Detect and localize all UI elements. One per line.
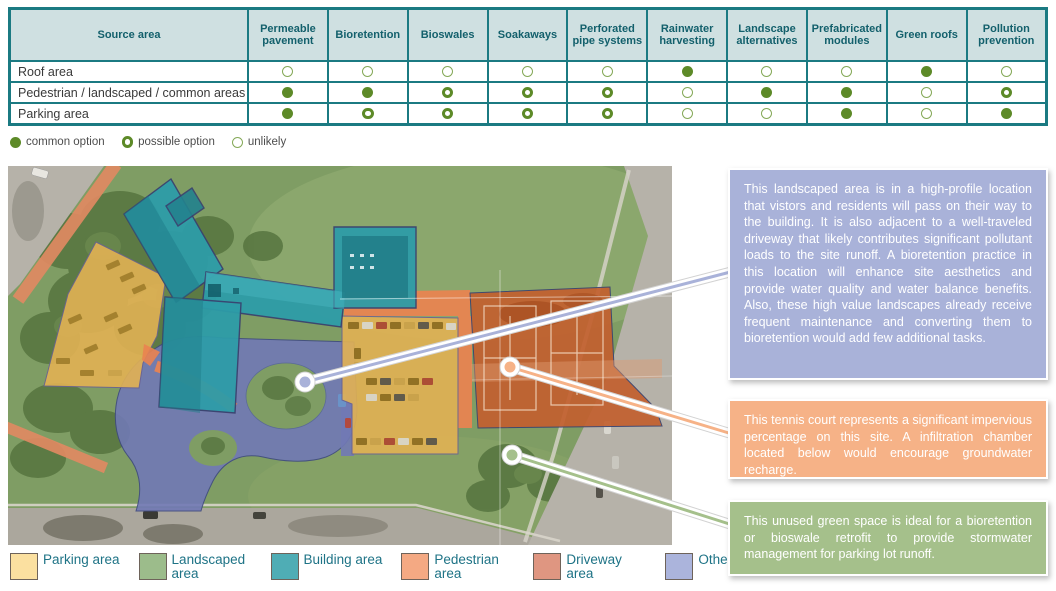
- option-cell: [967, 61, 1047, 82]
- possible-option-dot: [362, 108, 374, 120]
- parking-area-overlay-central: [342, 316, 458, 454]
- island-tree: [285, 396, 311, 416]
- possible-option-dot: [602, 87, 614, 99]
- common-option-dot: [761, 87, 772, 98]
- map-legend-item: Parking area: [10, 553, 120, 581]
- map-legend-item: Driveway area: [533, 553, 646, 581]
- unlikely-option-dot: [282, 66, 293, 77]
- tennis-court-callout: This tennis court represents a significa…: [728, 399, 1048, 479]
- unlikely-option-dot: [761, 108, 772, 119]
- option-cell: [967, 82, 1047, 103]
- map-legend-swatch: [533, 553, 561, 580]
- option-column-header: Bioswales: [408, 9, 488, 62]
- island-tree: [262, 376, 294, 400]
- option-cell: [488, 61, 568, 82]
- map-legend-swatch: [271, 553, 299, 580]
- option-cell: [328, 61, 408, 82]
- island-tree: [201, 437, 225, 455]
- option-cell: [328, 82, 408, 103]
- table-legend-label: possible option: [138, 136, 215, 148]
- unlikely-option-dot: [602, 66, 613, 77]
- table-legend-label: unlikely: [248, 136, 286, 148]
- option-column-header: Soakaways: [488, 9, 568, 62]
- map-legend-label: Parking area: [43, 553, 120, 567]
- option-cell: [887, 61, 967, 82]
- common-option-dot: [841, 87, 852, 98]
- map-legend-label: Building area: [304, 553, 383, 567]
- source-area-row-label: Parking area: [10, 103, 249, 125]
- option-cell: [647, 82, 727, 103]
- option-cell: [727, 61, 807, 82]
- possible-option-dot: [122, 136, 134, 148]
- unlikely-option-dot: [921, 108, 932, 119]
- table-legend-item: unlikely: [232, 136, 286, 148]
- table-legend-item: possible option: [122, 136, 215, 148]
- common-option-dot: [362, 87, 373, 98]
- option-cell: [488, 103, 568, 125]
- map-legend: Parking areaLandscaped areaBuilding area…: [10, 553, 732, 581]
- table-row: Parking area: [10, 103, 1047, 125]
- possible-option-dot: [442, 108, 454, 120]
- map-legend-label: Landscaped area: [172, 553, 252, 581]
- table-legend-item: common option: [10, 136, 105, 148]
- map-legend-item: Landscaped area: [139, 553, 252, 581]
- common-option-dot: [1001, 108, 1012, 119]
- option-column-header: Pollution prevention: [967, 9, 1047, 62]
- map-legend-swatch: [401, 553, 429, 580]
- road-shadow: [12, 181, 44, 241]
- unlikely-option-dot: [841, 66, 852, 77]
- option-column-header: Permeable pavement: [248, 9, 328, 62]
- table-header-row: Source areaPermeable pavementBioretentio…: [10, 9, 1047, 62]
- possible-option-dot: [442, 87, 454, 99]
- option-cell: [567, 61, 647, 82]
- option-cell: [408, 61, 488, 82]
- map-legend-item: Pedestrian area: [401, 553, 514, 581]
- green-space-callout: This unused green space is ideal for a b…: [728, 500, 1048, 576]
- option-cell: [408, 103, 488, 125]
- aerial-site-map: [8, 166, 672, 545]
- option-cell: [328, 103, 408, 125]
- option-cell: [727, 82, 807, 103]
- option-cell: [807, 82, 887, 103]
- map-legend-swatch: [139, 553, 167, 580]
- option-column-header: Perforated pipe systems: [567, 9, 647, 62]
- pedestrian-area-overlay-side: [458, 316, 472, 428]
- option-cell: [248, 61, 328, 82]
- unlikely-option-dot: [682, 108, 693, 119]
- common-option-dot: [282, 87, 293, 98]
- option-column-header: Green roofs: [887, 9, 967, 62]
- option-cell: [647, 103, 727, 125]
- table-legend: common optionpossible optionunlikely: [10, 136, 286, 148]
- option-cell: [248, 82, 328, 103]
- option-cell: [488, 82, 568, 103]
- table-legend-label: common option: [26, 136, 105, 148]
- option-cell: [807, 103, 887, 125]
- common-option-dot: [10, 137, 21, 148]
- option-cell: [567, 103, 647, 125]
- unlikely-option-dot: [232, 137, 243, 148]
- retrofit-options-table: Source areaPermeable pavementBioretentio…: [8, 7, 1048, 126]
- option-column-header: Bioretention: [328, 9, 408, 62]
- unlikely-option-dot: [442, 66, 453, 77]
- source-area-row-label: Roof area: [10, 61, 249, 82]
- option-cell: [967, 103, 1047, 125]
- unlikely-option-dot: [761, 66, 772, 77]
- car: [345, 418, 351, 428]
- map-legend-swatch: [665, 553, 693, 580]
- source-area-row-label: Pedestrian / landscaped / common areas: [10, 82, 249, 103]
- option-cell: [248, 103, 328, 125]
- option-cell: [408, 82, 488, 103]
- option-cell: [807, 61, 887, 82]
- map-legend-item: Other: [665, 553, 732, 581]
- possible-option-dot: [522, 87, 534, 99]
- unlikely-option-dot: [522, 66, 533, 77]
- table-row: Roof area: [10, 61, 1047, 82]
- map-legend-swatch: [10, 553, 38, 580]
- common-option-dot: [282, 108, 293, 119]
- unlikely-option-dot: [1001, 66, 1012, 77]
- option-column-header: Landscape alternatives: [727, 9, 807, 62]
- source-area-column-header: Source area: [10, 9, 249, 62]
- option-cell: [647, 61, 727, 82]
- option-cell: [727, 103, 807, 125]
- option-column-header: Prefabricated modules: [807, 9, 887, 62]
- map-legend-item: Building area: [271, 553, 383, 581]
- common-option-dot: [921, 66, 932, 77]
- possible-option-dot: [522, 108, 534, 120]
- map-legend-label: Pedestrian area: [434, 553, 514, 581]
- common-option-dot: [682, 66, 693, 77]
- unlikely-option-dot: [921, 87, 932, 98]
- unlikely-option-dot: [362, 66, 373, 77]
- option-cell: [887, 103, 967, 125]
- option-cell: [887, 82, 967, 103]
- table-row: Pedestrian / landscaped / common areas: [10, 82, 1047, 103]
- map-legend-label: Driveway area: [566, 553, 646, 581]
- unlikely-option-dot: [682, 87, 693, 98]
- common-option-dot: [841, 108, 852, 119]
- option-column-header: Rainwater harvesting: [647, 9, 727, 62]
- option-cell: [567, 82, 647, 103]
- possible-option-dot: [1001, 87, 1013, 99]
- possible-option-dot: [602, 108, 614, 120]
- landscaped-area-callout: This landscaped area is in a high-profil…: [728, 168, 1048, 380]
